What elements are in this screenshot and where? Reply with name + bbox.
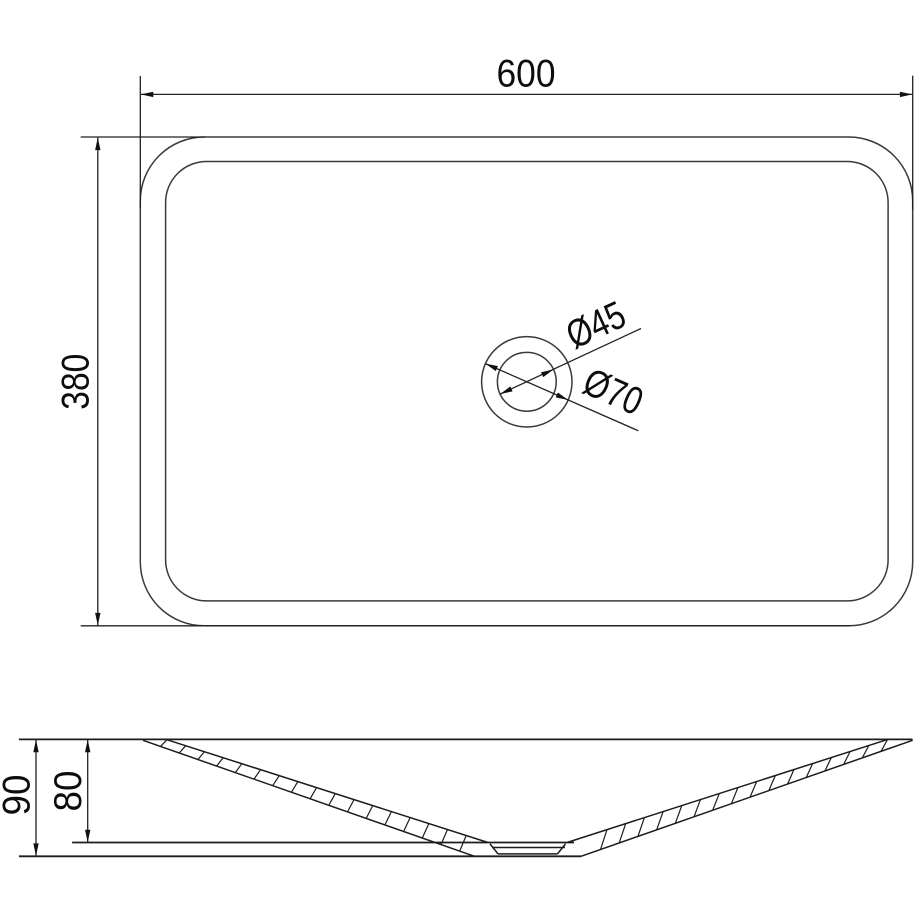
svg-text:90: 90	[0, 775, 39, 816]
svg-text:380: 380	[55, 354, 98, 410]
svg-text:80: 80	[47, 771, 90, 812]
svg-text:600: 600	[497, 53, 556, 96]
